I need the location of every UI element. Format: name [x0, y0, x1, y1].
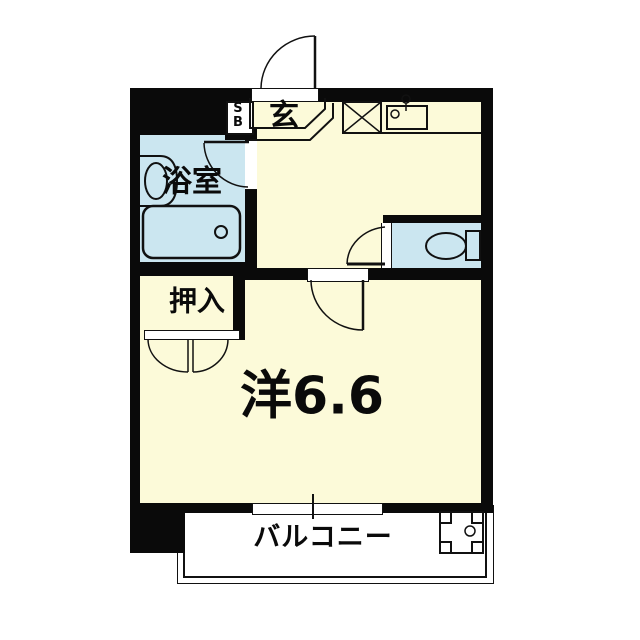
toilet-bowl-icon — [426, 233, 466, 259]
balcony-pan-corner-tl — [440, 512, 451, 523]
main-room-door-swing — [311, 280, 363, 330]
sink-drain-icon — [391, 110, 399, 118]
label-bathroom: 浴室 — [162, 166, 222, 198]
toilet-tank-icon — [466, 231, 480, 260]
label-closet: 押入 — [169, 286, 225, 315]
label-shoe-box: S B — [233, 102, 243, 130]
entrance-door-swing — [261, 36, 315, 88]
label-balcony: バルコニー — [253, 524, 392, 552]
balcony-pan-corner-br — [472, 542, 483, 553]
balcony-pan-drain-icon — [465, 526, 475, 536]
balcony-pan-corner-bl — [440, 542, 451, 553]
bathtub-drain-icon — [215, 226, 227, 238]
balcony-pan-icon — [440, 512, 483, 553]
closet-door-swing-left — [148, 339, 188, 372]
closet-door-leaves — [188, 339, 193, 372]
balcony-pan-corner-tr — [472, 512, 483, 523]
toilet-door-swing — [347, 227, 385, 264]
label-main-room: 洋6.6 — [240, 370, 384, 425]
closet-door-swing-right — [193, 339, 228, 372]
bathtub-icon — [143, 206, 240, 258]
faucet-icon — [402, 95, 410, 103]
washer-pan-cross — [343, 102, 381, 133]
label-entrance: 玄 — [269, 100, 299, 132]
floor-plan: 玄 S B 浴室 押入 洋6.6 バルコニー — [0, 0, 640, 640]
